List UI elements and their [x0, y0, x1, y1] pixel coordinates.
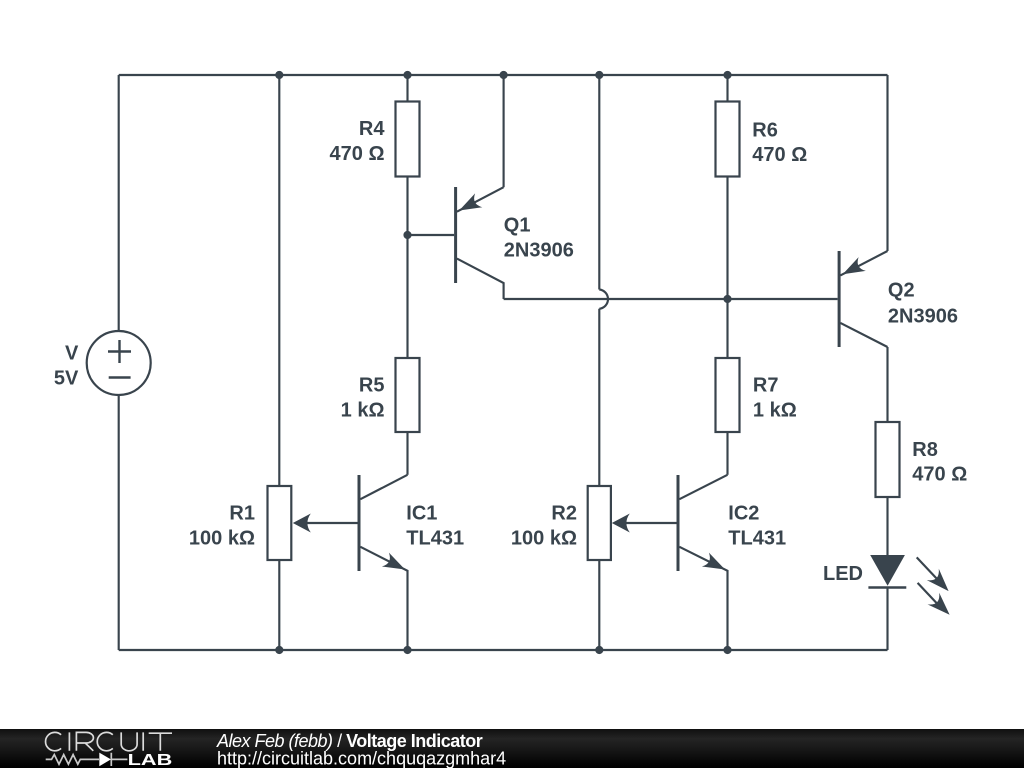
- svg-text:http://circuitlab.com/chquqazg: http://circuitlab.com/chquqazgmhar4: [217, 748, 506, 768]
- svg-text:470 Ω: 470 Ω: [330, 143, 385, 165]
- svg-text:R7: R7: [753, 374, 779, 396]
- svg-text:IC1: IC1: [406, 503, 437, 525]
- svg-text:470 Ω: 470 Ω: [752, 144, 807, 166]
- svg-text:1 kΩ: 1 kΩ: [753, 399, 797, 421]
- svg-text:LAB: LAB: [128, 752, 173, 768]
- svg-text:Q2: Q2: [888, 280, 915, 302]
- svg-text:Q1: Q1: [504, 214, 531, 236]
- svg-text:R6: R6: [752, 119, 778, 141]
- svg-text:100 kΩ: 100 kΩ: [511, 528, 577, 550]
- svg-text:R4: R4: [359, 118, 385, 140]
- svg-text:R5: R5: [359, 374, 385, 396]
- svg-text:V: V: [65, 342, 79, 364]
- svg-text:LED: LED: [823, 563, 863, 585]
- svg-text:100 kΩ: 100 kΩ: [189, 528, 255, 550]
- svg-text:1 kΩ: 1 kΩ: [341, 399, 385, 421]
- svg-text:R2: R2: [551, 503, 577, 525]
- svg-text:TL431: TL431: [406, 528, 464, 550]
- svg-text:2N3906: 2N3906: [888, 305, 958, 327]
- svg-text:R8: R8: [912, 439, 938, 461]
- svg-text:R1: R1: [229, 503, 255, 525]
- svg-text:IC2: IC2: [728, 503, 759, 525]
- svg-text:TL431: TL431: [728, 528, 786, 550]
- svg-text:2N3906: 2N3906: [504, 240, 574, 262]
- svg-text:5V: 5V: [54, 367, 79, 389]
- svg-text:470 Ω: 470 Ω: [912, 464, 967, 486]
